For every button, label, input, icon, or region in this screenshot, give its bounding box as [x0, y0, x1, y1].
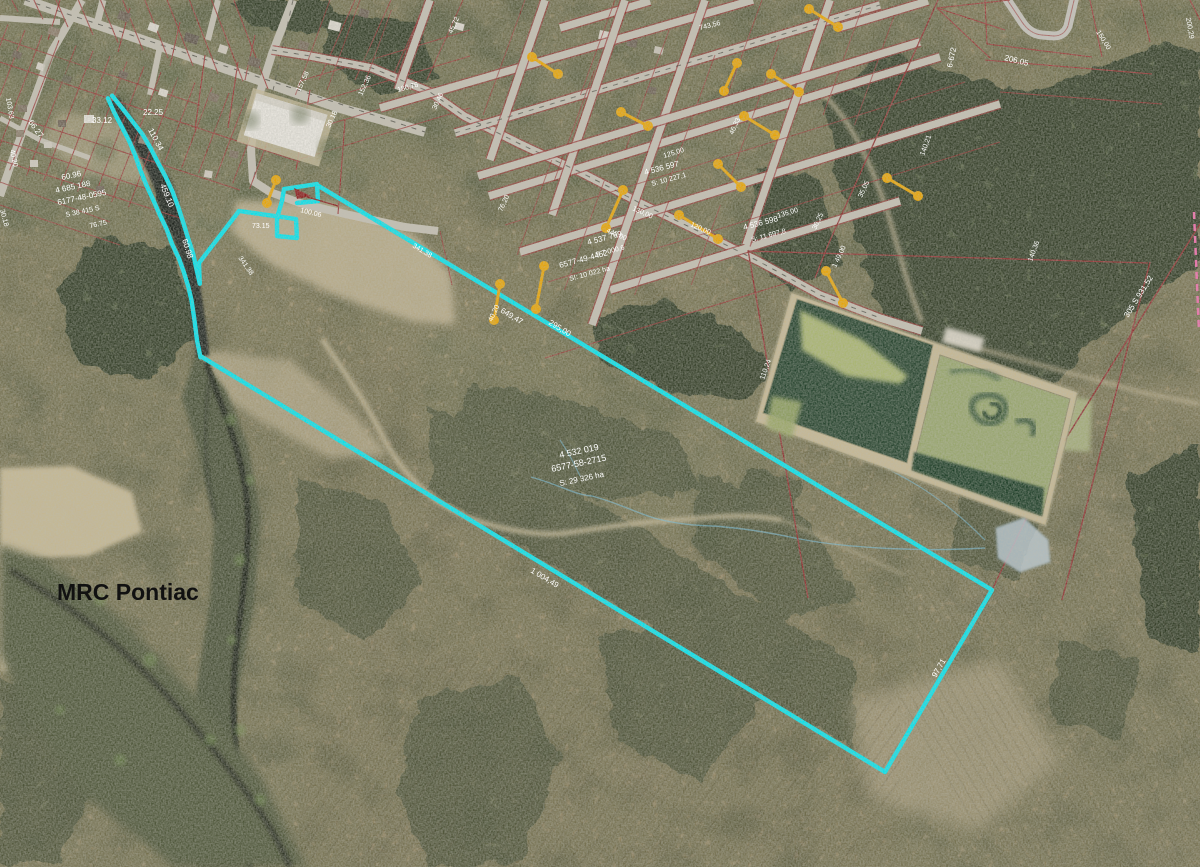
svg-text:33.12: 33.12	[92, 116, 113, 125]
svg-text:22.25: 22.25	[143, 108, 164, 117]
svg-text:73.15: 73.15	[252, 223, 270, 230]
svg-text:MRC Pontiac: MRC Pontiac	[57, 579, 199, 605]
